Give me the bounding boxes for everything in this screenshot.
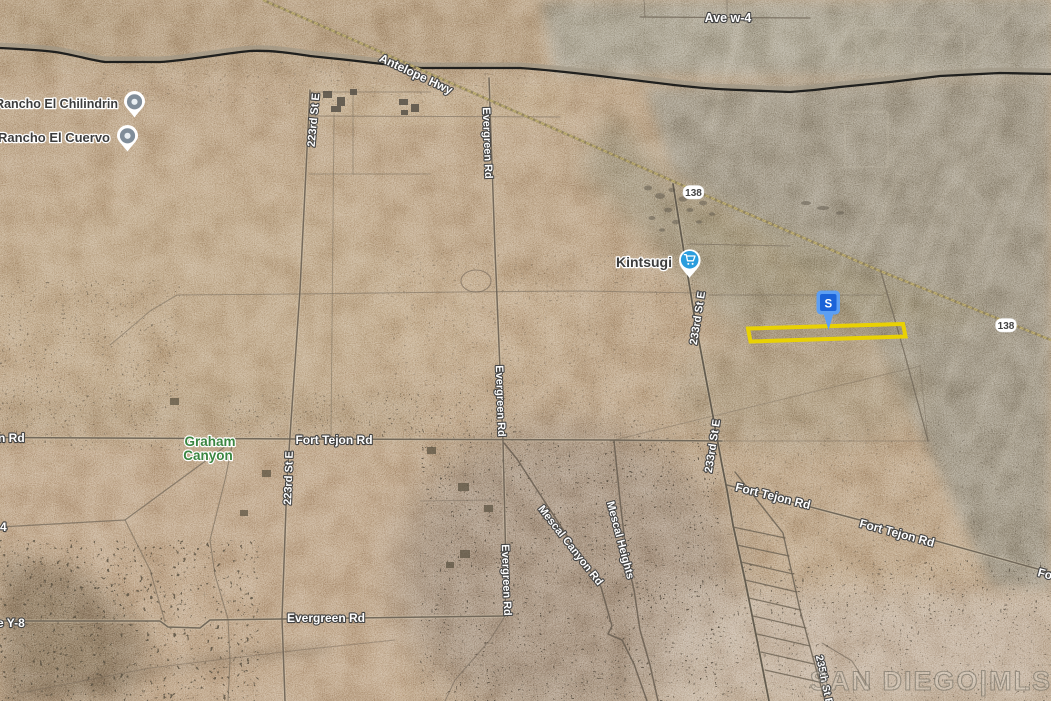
svg-text:Canyon: Canyon — [183, 448, 233, 463]
svg-text:Graham: Graham — [184, 434, 235, 449]
svg-text:Evergreen Rd: Evergreen Rd — [493, 365, 507, 437]
svg-text:n Rd: n Rd — [0, 431, 25, 445]
svg-text:e Y-8: e Y-8 — [0, 616, 25, 630]
svg-text:Fort Tejon Rd: Fort Tejon Rd — [295, 433, 372, 447]
svg-text:4: 4 — [0, 520, 7, 534]
svg-text:Ave w-4: Ave w-4 — [705, 11, 752, 25]
svg-text:Evergreen Rd: Evergreen Rd — [480, 107, 494, 179]
svg-text:138: 138 — [998, 321, 1015, 332]
svg-text:Kintsugi: Kintsugi — [616, 254, 672, 270]
svg-text:Evergreen Rd: Evergreen Rd — [499, 544, 513, 616]
svg-text:138: 138 — [685, 188, 702, 199]
svg-text:Rancho El Cuervo: Rancho El Cuervo — [0, 130, 110, 145]
svg-text:Rancho El Chilindrin: Rancho El Chilindrin — [0, 97, 118, 111]
svg-text:223rd St E: 223rd St E — [282, 451, 296, 505]
svg-text:SAN DIEGO|MLS: SAN DIEGO|MLS — [810, 666, 1051, 696]
svg-text:S: S — [824, 298, 832, 310]
svg-text:Evergreen Rd: Evergreen Rd — [287, 611, 365, 625]
